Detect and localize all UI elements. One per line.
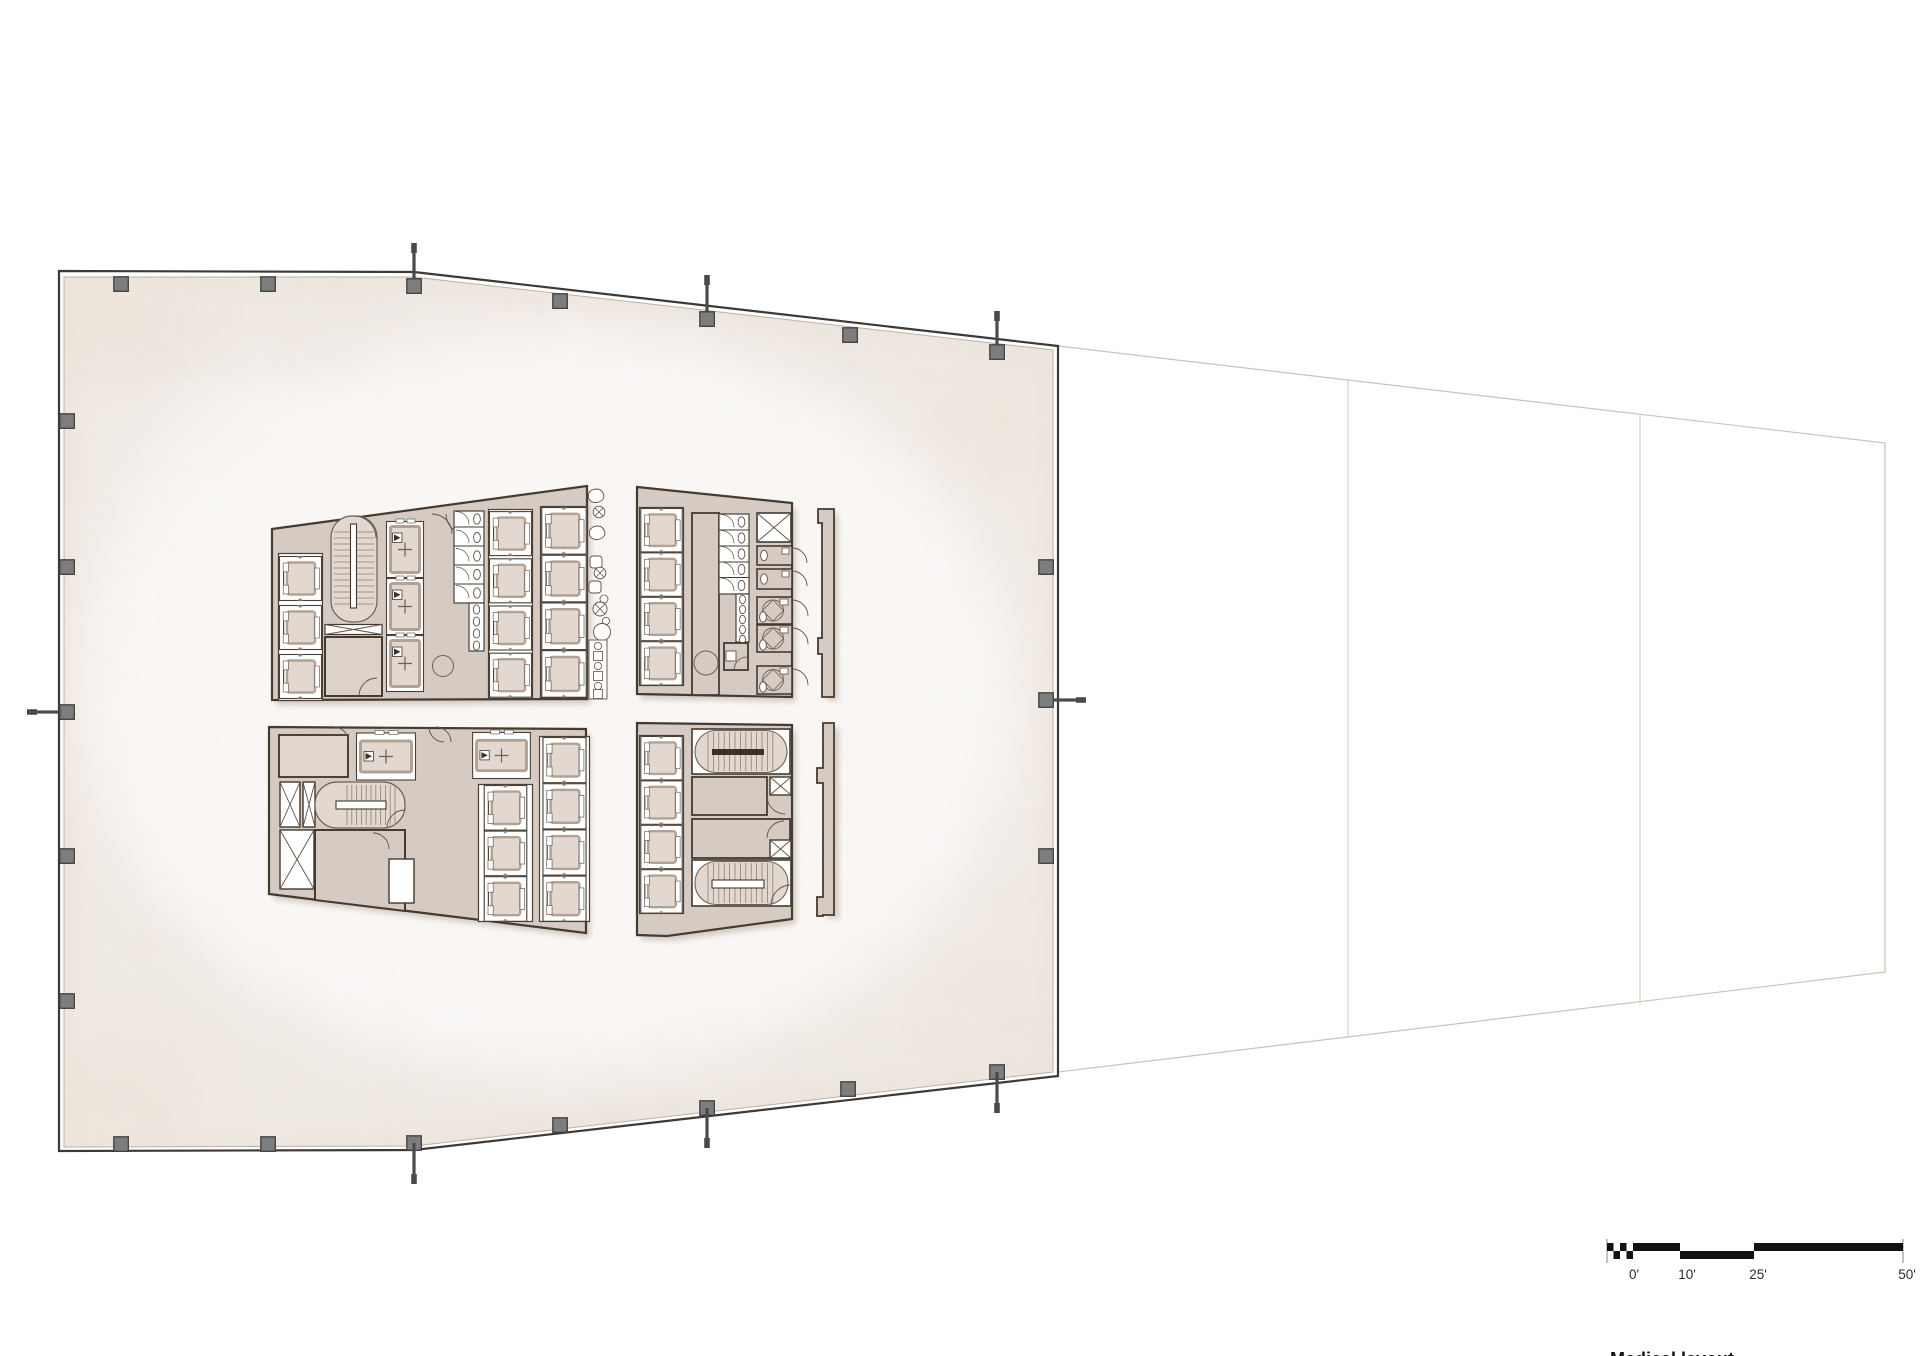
svg-text:0': 0' (1629, 1267, 1639, 1282)
svg-text:10': 10' (1678, 1267, 1696, 1282)
svg-text:50': 50' (1898, 1267, 1916, 1282)
svg-text:Medical layout: Medical layout (1610, 1349, 1734, 1356)
svg-text:25': 25' (1749, 1267, 1767, 1282)
